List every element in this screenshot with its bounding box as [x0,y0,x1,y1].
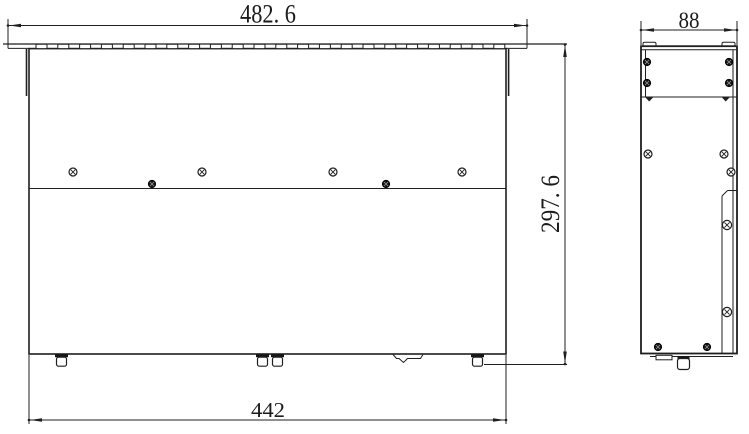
dim-label-depth: 88 [679,8,700,33]
dim-label-body-width: 442 [251,398,285,422]
side-feet [650,355,733,369]
enclosure-body-outline [29,49,506,354]
technical-drawing: 482. 6 297. 6 442 [0,0,749,434]
drawing-canvas: 482. 6 297. 6 442 [0,0,749,434]
side-body-outline [641,46,737,353]
feet [55,354,484,366]
dimension-flange-width: 482. 6 [7,0,529,29]
dim-label-overall-height: 297. 6 [536,175,565,233]
front-view: 482. 6 297. 6 442 [3,0,567,424]
dimension-depth: 88 [640,8,739,45]
bottom-tab [393,355,423,363]
dim-label-flange-width: 482. 6 [240,0,296,29]
side-view: 88 [640,8,739,370]
